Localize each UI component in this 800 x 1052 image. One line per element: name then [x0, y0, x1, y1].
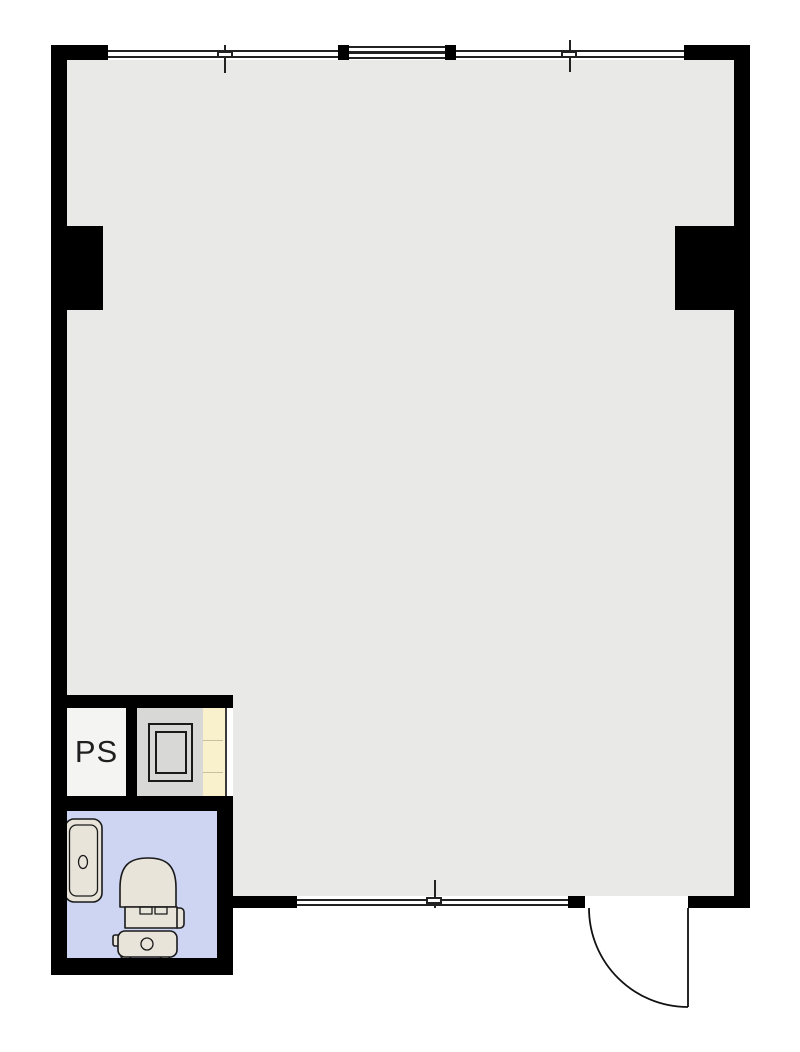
- shelf-divider-line: [203, 772, 223, 773]
- ps-divider-wall: [126, 708, 137, 796]
- top-window-middle: [349, 45, 445, 60]
- window-glass-line: [349, 57, 445, 59]
- pillar-right: [675, 226, 750, 310]
- pipe-space-label: PS: [75, 734, 118, 770]
- utility-block-top-wall: [51, 695, 233, 708]
- entry-door-swing-icon: [580, 890, 710, 1015]
- water-heater-inner-icon: [155, 731, 187, 774]
- window-glass-line: [349, 46, 445, 48]
- utility-block-middle-wall: [51, 796, 233, 811]
- right-wall: [734, 45, 750, 908]
- floorplan: PS: [0, 0, 800, 1052]
- bottom-wall-stub: [233, 896, 297, 908]
- top-wall-corner-right: [684, 45, 750, 60]
- window-sash-step: [561, 51, 577, 58]
- bathroom-bottom-wall: [51, 958, 233, 975]
- main-room-floor-lower: [233, 695, 737, 896]
- pillar-left: [51, 226, 103, 310]
- window-sash-step: [217, 51, 233, 58]
- top-wall-corner-left: [51, 45, 108, 60]
- window-glass-line: [349, 51, 445, 54]
- toilet-icon: [105, 850, 200, 965]
- top-wall-pier-2: [445, 45, 456, 60]
- pipe-space-room: PS: [67, 708, 126, 796]
- main-room-floor-upper: [67, 60, 737, 695]
- top-wall-pier-1: [338, 45, 349, 60]
- shelf-divider-line: [203, 740, 223, 741]
- window-sash-tick: [224, 45, 226, 73]
- shelf-strip: [203, 708, 227, 796]
- window-sash-step: [426, 897, 442, 904]
- left-wall: [51, 45, 67, 975]
- bathroom-right-wall: [217, 811, 233, 975]
- window-glass-line: [297, 904, 568, 906]
